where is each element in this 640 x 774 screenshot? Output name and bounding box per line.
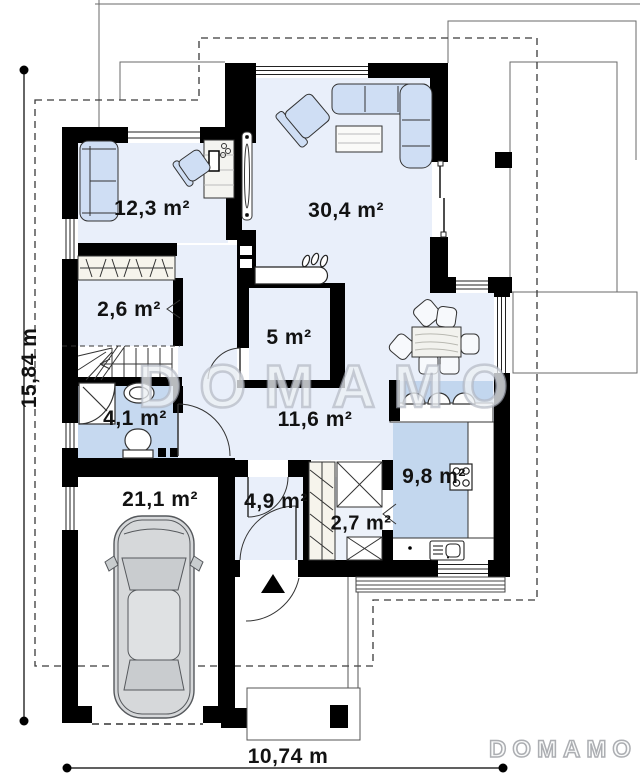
car-rear-window [124,660,184,690]
car-windshield [122,558,186,590]
wall-segment [488,560,510,577]
car-roof [128,590,180,660]
window-office-left [62,219,78,259]
wall-segment [430,63,448,162]
wall-segment [62,259,78,423]
counter-dot [408,546,412,550]
sliding-door-living [438,161,446,237]
watermark-center: DOMAMO [138,352,526,421]
window-living-top [256,63,368,78]
terrace-right-lower [513,292,637,373]
room-area-label-storage: 5 m² [266,326,311,350]
wall-segment [62,458,235,477]
room-area-label-office: 12,3 m² [114,197,190,221]
pivot-door-living [242,132,252,220]
room-area-label-pantry: 2,7 m² [331,513,392,536]
window-garage-left [62,487,78,530]
wall-segment [494,293,510,297]
room-area-label-kitchen: 9,8 m² [402,465,466,489]
terrace-top-right [448,21,636,160]
path-outline [120,62,225,100]
chimney-flue [240,259,252,268]
wall-segment [62,706,92,723]
exterior-grate [356,577,505,592]
monitor-icon [209,151,219,171]
window-bath-left [62,423,78,448]
wall-segment [62,530,78,723]
room-area-label-garage: 21,1 m² [122,488,198,512]
toilet [123,429,153,458]
window-kitchen-bottom [438,560,488,577]
wall-segment [298,560,438,577]
wall-segment [218,460,248,477]
wall-segment [382,460,393,490]
car-top-view [105,516,203,718]
room-area-label-wardrobe: 2,6 m² [97,298,161,322]
door-stop [158,448,166,457]
wall-segment [225,63,256,143]
dining-chair [436,306,458,328]
fence-post [495,152,512,168]
watermark-corner: DOMAMO [489,736,637,764]
wall-segment [173,278,183,346]
room-area-label-entry: 4,9 m² [244,490,308,514]
dining-chair [461,334,479,354]
window-office-top [128,127,200,143]
wall-segment [62,243,177,256]
wall-segment [488,277,512,293]
wall-segment [430,237,448,293]
chimney-flue [240,246,252,255]
coffee-table [336,126,382,152]
porch-column [221,708,247,728]
door-stop [170,448,178,457]
width-dimension-label: 10,74 m [248,745,329,769]
height-dimension-label: 15,84 m [18,328,42,409]
wall-segment [218,477,235,723]
wall-segment [446,277,456,293]
porch-column [330,705,348,728]
office-sofa [80,141,118,221]
wardrobe-strip-entry [309,462,335,560]
floor-plan: 12,3 m² 30,4 m² 2,6 m² 5 m² 4,1 m² 11,6 … [0,0,640,774]
kitchen-sink [430,541,464,560]
window-dining-step [456,277,488,293]
porch [247,577,505,740]
terrace-right [510,62,617,292]
fireplace-chimney [237,230,256,288]
wall-segment [237,288,249,348]
entrance-marker [246,574,299,621]
wardrobe-strip-closet [78,256,175,280]
room-area-label-living: 30,4 m² [308,199,384,223]
